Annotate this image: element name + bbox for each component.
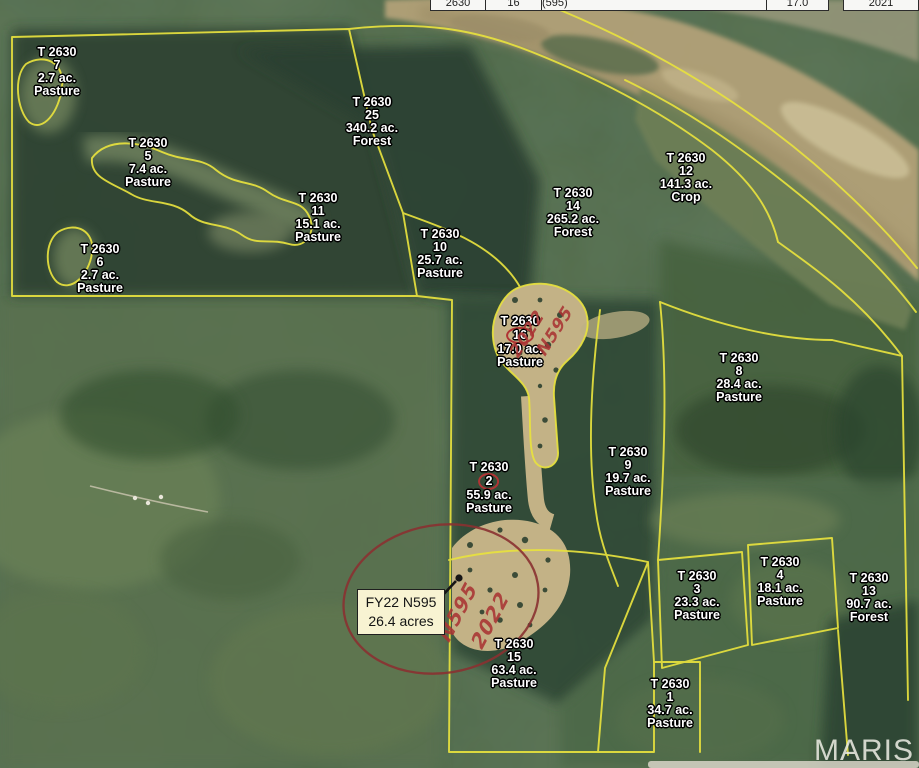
maris-watermark: MARIS [814, 734, 914, 768]
aerial-parcel-map-screenshot: 2630 16 Pest Management Conservation Sys… [0, 0, 919, 768]
callout-line2: 26.4 acres [368, 612, 433, 631]
plan-cell-practice: Pest Management Conservation System (595… [542, 0, 767, 11]
aerial-map-background [0, 0, 919, 768]
plan-cell-field: 16 [486, 0, 542, 11]
callout-line1: FY22 N595 [366, 593, 437, 612]
plan-cell-tract: 2630 [430, 0, 486, 11]
fy22-callout-box: FY22 N595 26.4 acres [357, 589, 445, 635]
plan-cell-gap [829, 0, 843, 11]
plan-table-row: 2630 16 Pest Management Conservation Sys… [430, 0, 919, 11]
plan-cell-amount: 17.0 [767, 0, 829, 11]
plan-cell-year: 2021 [843, 0, 919, 11]
